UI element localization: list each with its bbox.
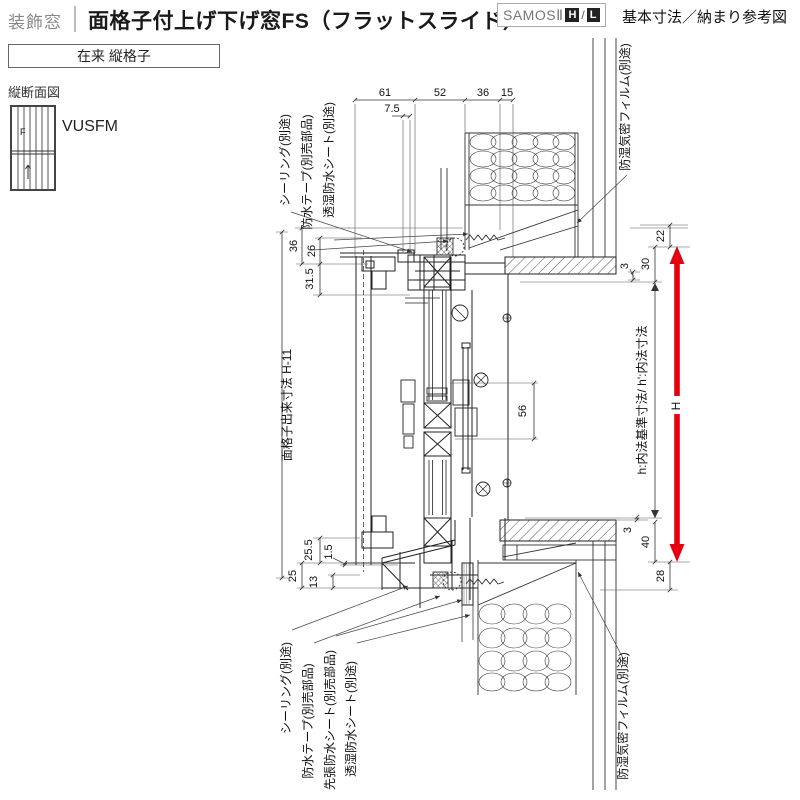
- face-grille: [340, 250, 415, 572]
- dim-25: 25: [287, 570, 299, 582]
- label-inner-dim: h:内法基準寸法/ h':内法寸法: [634, 326, 649, 475]
- dim-25-5: 25.5: [303, 539, 315, 560]
- dim-52: 52: [434, 87, 446, 99]
- dim-3-bottom: 3: [622, 527, 634, 533]
- sash-assembly: [405, 257, 508, 563]
- dimension-extension-lines: [276, 104, 690, 590]
- wall-structure-top: [441, 38, 616, 257]
- label-sheet-top: 透湿防水シート(別途): [321, 102, 336, 218]
- dim-22: 22: [655, 230, 667, 242]
- dim-56: 56: [517, 405, 529, 417]
- dim-13: 13: [308, 576, 320, 588]
- wall-structure-bottom: [478, 541, 616, 790]
- label-film-bottom: 防湿気密フィルム(別途): [615, 652, 630, 780]
- dim-7-5: 7.5: [384, 103, 399, 115]
- label-film-top: 防湿気密フィルム(別途): [617, 43, 632, 171]
- dim-1-5: 1.5: [323, 544, 335, 559]
- label-grille-dim: 面格子出来寸法 H-11: [279, 348, 294, 461]
- height-arrow-label: H: [669, 402, 683, 411]
- insulation-batt-top: [470, 134, 575, 201]
- dim-31-5: 31.5: [304, 268, 316, 289]
- label-presheet-bottom: 先張防水シート(別売部品): [322, 650, 337, 790]
- dim-40: 40: [640, 536, 652, 548]
- dim-26: 26: [306, 245, 318, 257]
- interior-casing-boards: [500, 257, 616, 541]
- dim-30: 30: [640, 258, 652, 270]
- label-tape-bottom: 防水テープ(別売部品): [300, 663, 315, 778]
- dim-3-top: 3: [619, 263, 631, 269]
- dim-28: 28: [655, 570, 667, 582]
- insulation-batt-bottom: [479, 604, 571, 691]
- dimension-values: 61 52 36 15 7.5 36 26 31.5 56 25.5 1.5 2…: [287, 87, 667, 588]
- anchor-fixings: [433, 235, 505, 590]
- label-sheet-bottom: 透湿防水シート(別途): [343, 661, 358, 777]
- dim-61: 61: [379, 87, 391, 99]
- label-sealing-bottom: シーリング(別途): [278, 642, 293, 734]
- dim-36-top: 36: [477, 87, 489, 99]
- label-tape-top: 防水テープ(別売部品): [299, 114, 314, 229]
- height-arrow: H: [669, 246, 685, 562]
- section-drawing: H 61 52 36 15 7.5 36 26 31.5 56 25.5 1.5…: [0, 0, 800, 800]
- dim-15: 15: [501, 87, 513, 99]
- catalog-page: { "header": { "category": "装飾窓", "title"…: [0, 0, 800, 800]
- label-sealing-top: シーリング(別途): [277, 114, 292, 206]
- dim-36-left: 36: [288, 240, 300, 252]
- lock-hardware: [401, 305, 511, 496]
